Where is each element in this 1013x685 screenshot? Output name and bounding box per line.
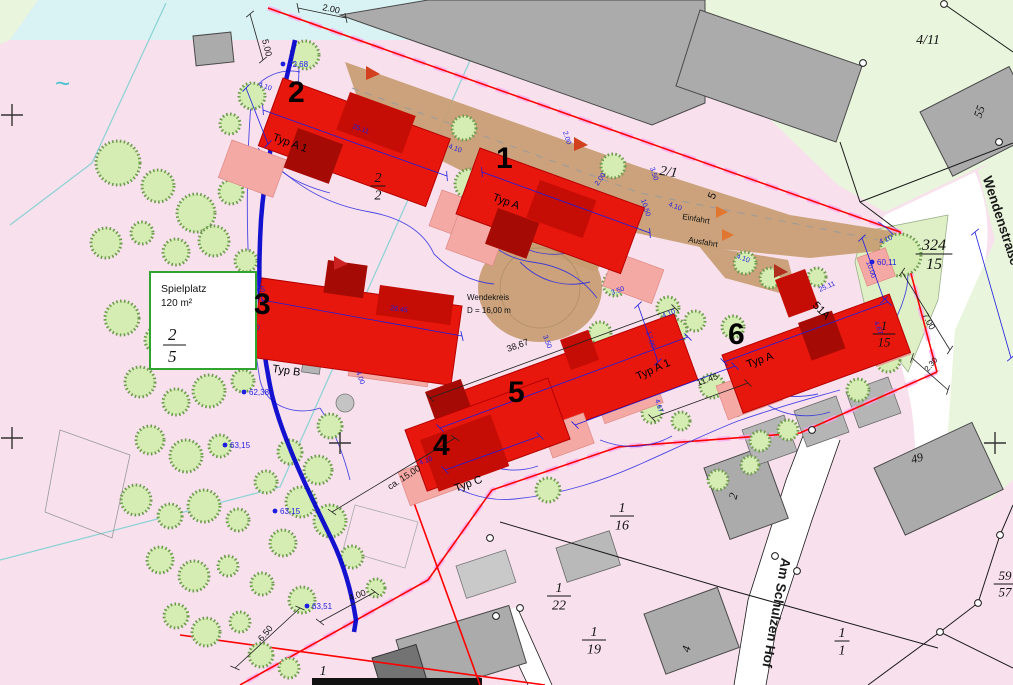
tree bbox=[209, 435, 231, 457]
tree bbox=[91, 228, 121, 258]
parcel-number: 19 bbox=[587, 642, 601, 657]
water-tilde-symbol: ~ bbox=[55, 68, 70, 98]
building-4-number: 4 bbox=[433, 429, 450, 462]
elevation-label: 62,68 bbox=[288, 60, 309, 69]
parcel-number: 1 bbox=[556, 581, 563, 596]
playground-area: 120 m² bbox=[161, 298, 193, 309]
tree bbox=[220, 114, 240, 134]
parcel-number: 59 bbox=[999, 568, 1013, 583]
tree bbox=[750, 431, 770, 451]
tree bbox=[741, 456, 759, 474]
parcel-number: 15 bbox=[878, 334, 892, 349]
playground-parcel-num: 2 bbox=[168, 325, 177, 344]
site-plan: ~ bbox=[0, 0, 1013, 685]
parcel-number: 2 bbox=[375, 188, 382, 203]
tree bbox=[131, 222, 153, 244]
tree bbox=[249, 643, 273, 667]
elevation-point-icon bbox=[223, 443, 228, 448]
parcel-number: 2 bbox=[375, 171, 382, 186]
survey-point-icon bbox=[937, 629, 944, 636]
parcel-number: 1 bbox=[619, 501, 626, 516]
tree bbox=[218, 556, 238, 576]
playground-parcel-den: 5 bbox=[168, 347, 177, 366]
tree bbox=[708, 470, 728, 490]
building-5-number: 5 bbox=[508, 376, 525, 409]
manhole bbox=[336, 394, 354, 412]
parcel-number: 1 bbox=[881, 318, 888, 333]
tree bbox=[164, 604, 188, 628]
tree bbox=[367, 579, 385, 597]
survey-point-icon bbox=[941, 1, 948, 8]
elevation-point-icon bbox=[242, 390, 247, 395]
turning-circle-diameter: D = 16,00 m bbox=[467, 306, 511, 315]
site-plan-canvas: ~ bbox=[0, 0, 1013, 685]
tree bbox=[125, 367, 155, 397]
tree bbox=[847, 379, 869, 401]
tree bbox=[170, 440, 202, 472]
tree bbox=[147, 547, 173, 573]
elevation-label: 63,15 bbox=[230, 441, 251, 450]
parcel-number: 1 bbox=[839, 626, 846, 641]
building-3-number: 3 bbox=[254, 288, 271, 321]
tree bbox=[808, 268, 826, 286]
tree bbox=[105, 301, 139, 335]
tree bbox=[672, 412, 690, 430]
elevation-label: 60,11 bbox=[877, 258, 897, 267]
tree bbox=[96, 141, 140, 185]
parcel-number: 1 bbox=[591, 625, 598, 640]
elevation-label: 62,38 bbox=[249, 388, 270, 397]
tree bbox=[121, 485, 151, 515]
parcel-number: 16 bbox=[615, 518, 629, 533]
tree bbox=[536, 478, 560, 502]
playground-title: Spielplatz bbox=[161, 283, 207, 295]
tree bbox=[279, 658, 299, 678]
building-1-number: 1 bbox=[496, 142, 513, 175]
elevation-point-icon bbox=[281, 62, 286, 67]
tree bbox=[251, 573, 273, 595]
survey-point-icon bbox=[996, 139, 1003, 146]
survey-point-icon bbox=[975, 600, 982, 607]
tree bbox=[179, 561, 209, 591]
survey-point-icon bbox=[860, 60, 867, 67]
tree bbox=[255, 471, 277, 493]
elevation-label: 63,15 bbox=[280, 507, 301, 516]
tree bbox=[188, 490, 220, 522]
elevation-point-icon bbox=[305, 604, 310, 609]
tree bbox=[163, 389, 189, 415]
tree bbox=[685, 311, 705, 331]
parcel-number: 1 bbox=[320, 664, 327, 679]
tree bbox=[163, 239, 189, 265]
survey-point-icon bbox=[794, 568, 801, 575]
tree bbox=[452, 116, 476, 140]
parcel-number: 4/11 bbox=[916, 33, 940, 48]
parcel-number: 22 bbox=[552, 598, 566, 613]
existing-building bbox=[193, 32, 234, 66]
tree bbox=[227, 509, 249, 531]
elevation-point-icon bbox=[870, 260, 875, 265]
parcel-number: 57 bbox=[999, 584, 1013, 599]
tree bbox=[230, 612, 250, 632]
elevation-label: 63,51 bbox=[312, 602, 333, 611]
tree bbox=[304, 456, 332, 484]
survey-point-icon bbox=[772, 553, 779, 560]
survey-point-icon bbox=[493, 613, 500, 620]
tree bbox=[235, 250, 257, 272]
turning-circle-name: Wendekreis bbox=[467, 293, 509, 302]
survey-point-icon bbox=[517, 605, 524, 612]
tree bbox=[142, 170, 174, 202]
elevation-point-icon bbox=[273, 509, 278, 514]
tree bbox=[177, 194, 215, 232]
tree bbox=[778, 420, 798, 440]
parcel-number: 324 bbox=[921, 237, 946, 254]
tree bbox=[158, 504, 182, 528]
tree bbox=[192, 618, 220, 646]
building-2-number: 2 bbox=[288, 76, 305, 109]
tree bbox=[136, 426, 164, 454]
parcel-number: 2/1 bbox=[659, 164, 679, 181]
tree bbox=[270, 530, 296, 556]
roof-section bbox=[323, 260, 367, 298]
bottom-structure-edge bbox=[312, 678, 482, 685]
tree bbox=[318, 414, 342, 438]
parcel-number: 15 bbox=[926, 256, 942, 273]
survey-point-icon bbox=[997, 532, 1004, 539]
survey-point-icon bbox=[809, 427, 816, 434]
survey-point-icon bbox=[487, 535, 494, 542]
parcel-number: 1 bbox=[839, 643, 846, 658]
tree bbox=[193, 375, 225, 407]
playground-box: Spielplatz 120 m² 2 5 bbox=[150, 272, 256, 369]
tree bbox=[199, 226, 229, 256]
building-6-number: 6 bbox=[728, 318, 745, 351]
